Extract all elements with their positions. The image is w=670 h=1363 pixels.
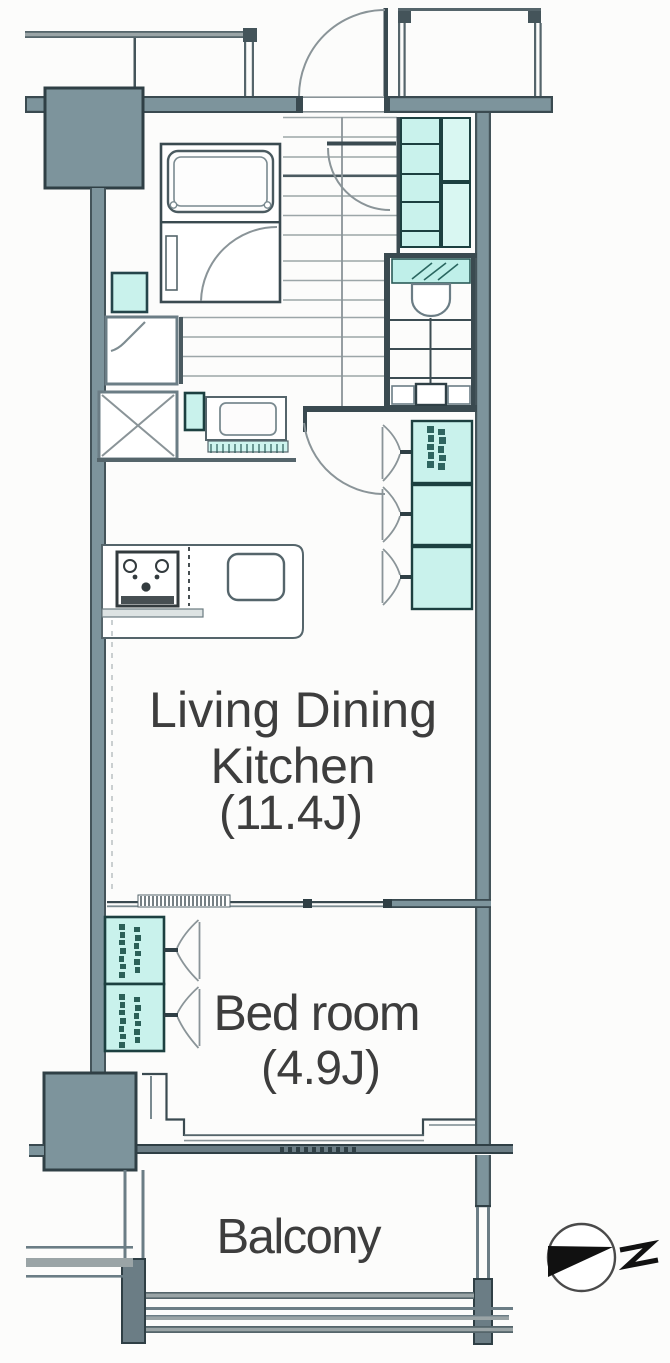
svg-text:Bed room: Bed room [214,985,421,1041]
svg-text:(11.4J): (11.4J) [219,787,363,840]
svg-text:Living Dining: Living Dining [149,682,437,738]
svg-text:(4.9J): (4.9J) [261,1042,381,1095]
svg-text:Kitchen: Kitchen [211,738,376,794]
svg-text:Balcony: Balcony [217,1210,383,1264]
